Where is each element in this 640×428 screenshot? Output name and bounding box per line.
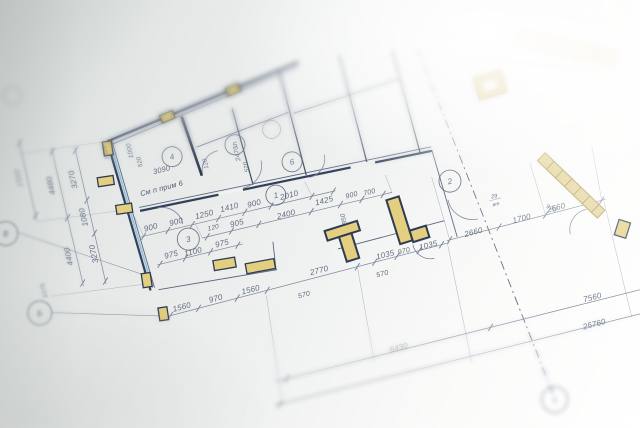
dimension-label: 1410 [219, 201, 240, 214]
hatched-wall-strip [536, 143, 606, 228]
dimension-label: 3270 [87, 244, 100, 264]
dimension-label: 970 [208, 292, 224, 304]
axis-marker-label: Б [36, 308, 43, 318]
dimension-label: 900 [143, 221, 159, 233]
dimension-label: 7560 [582, 291, 603, 304]
wall-pier [614, 219, 630, 238]
blueprint-drawing: См п прим 6 29 вт 456132ВБ1 900900125014… [0, 0, 640, 428]
axis-marker-label: 4 [169, 152, 176, 162]
wall-pier [159, 110, 175, 123]
dimension-label: 3270 [67, 169, 80, 189]
highlighted-piers [83, 7, 633, 347]
wall-pier [245, 259, 275, 274]
dimension-lines [16, 10, 640, 428]
dimension-label: 570 [297, 290, 311, 300]
dimension-label: 520 [136, 155, 144, 167]
wall-pier [225, 83, 241, 96]
dimension-label: 3090 [152, 163, 172, 176]
dimension-label: 4400 [62, 246, 75, 266]
axis-marker-label: В [2, 229, 10, 239]
dimension-label: 1000 [125, 142, 135, 159]
dimension-label: 2400 [275, 208, 297, 222]
walls [99, 8, 590, 328]
note-text: См п прим 6 [139, 178, 184, 198]
l-shaped-pier [386, 191, 429, 246]
dimension-label: 850 [339, 212, 348, 225]
fraction-note: 29 вт [488, 193, 503, 209]
dimension-label: 970 [397, 247, 411, 257]
axis-lines [0, 16, 640, 428]
dimension-label: 2470 [232, 145, 242, 163]
dimension-label: 2660 [462, 225, 484, 239]
wall-pier [97, 175, 114, 186]
dimension-label: 1425 [314, 194, 335, 207]
wall-pier [158, 307, 169, 321]
axis-marker [1, 85, 22, 106]
dimension-label: 25760 [581, 317, 607, 332]
dimension-label: 1080 [77, 207, 90, 227]
axis-marker-label: 3 [185, 234, 192, 244]
axis-marker-label: 2 [446, 176, 454, 186]
dimension-label: 1100 [183, 245, 203, 258]
dimension-label: 4480 [44, 175, 57, 195]
dimension-ticks [16, 11, 640, 428]
blue-highlight-wall [110, 139, 153, 290]
dimension-label: 900 [246, 197, 262, 209]
dimension-label: 2770 [308, 264, 330, 278]
wall-pier [116, 203, 133, 214]
svg-text:вт: вт [492, 201, 500, 208]
dimension-label: 900 [345, 191, 359, 201]
dimension-label: 1075 [39, 282, 49, 299]
dimension-label: 1250 [194, 208, 215, 221]
axis-marker: 1 [539, 384, 570, 415]
dimension-label: 120 [202, 157, 210, 169]
dimension-labels: 9009001250141090020101209052400142590070… [11, 47, 608, 428]
axis-marker: Б [25, 299, 54, 328]
wall-pier [213, 257, 236, 270]
dimension-label: 700 [363, 188, 377, 198]
dimension-label: 1560 [172, 300, 193, 313]
axis-marker: В [0, 219, 20, 248]
dimension-label: 905 [229, 217, 245, 229]
wall-pier [141, 273, 152, 288]
dimension-label: 570 [376, 269, 390, 279]
dimension-label: 900 [168, 216, 184, 228]
dimension-label: 1560 [12, 168, 25, 188]
axis-marker-label: 6 [289, 157, 296, 167]
far-wing-faint-plan [411, 0, 622, 113]
axis-marker-label: 1 [552, 395, 558, 405]
dimension-label: 6430 [389, 341, 410, 354]
dimension-label: 120 [207, 223, 220, 233]
dimension-label: 1700 [512, 212, 533, 225]
blueprint-photo: См п прим 6 29 вт 456132ВБ1 900900125014… [0, 0, 640, 428]
dimension-label: 520 [243, 160, 251, 172]
column-detail-square [474, 71, 507, 100]
dimension-label: 975 [163, 248, 179, 260]
axis-marker-label: 1 [273, 191, 279, 201]
